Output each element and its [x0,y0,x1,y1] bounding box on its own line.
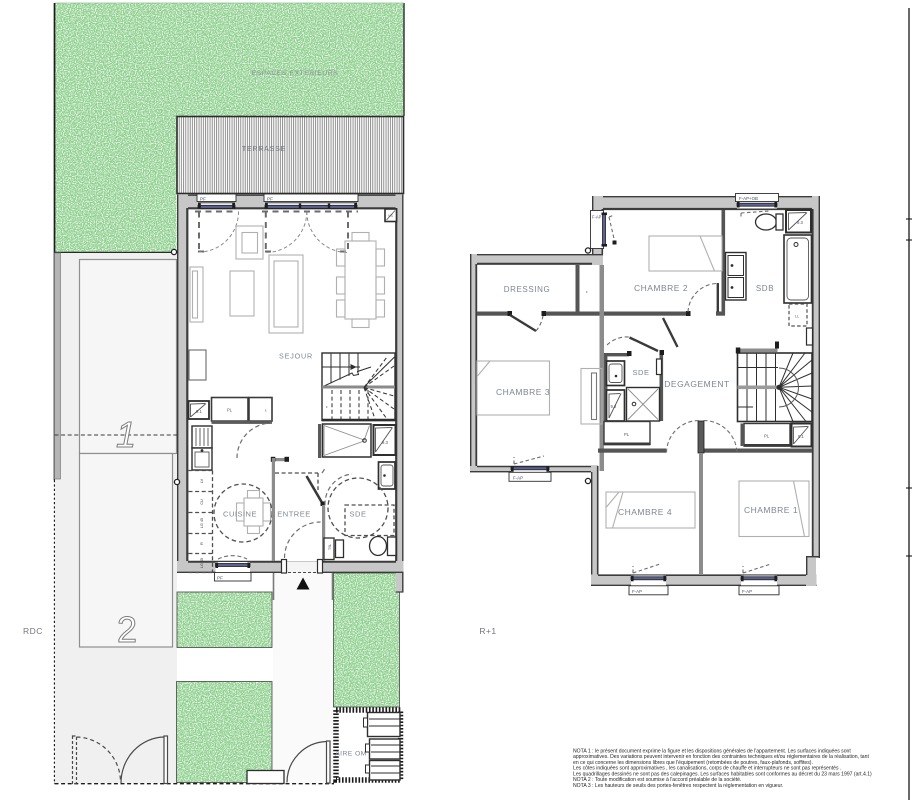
svg-text:SDE: SDE [633,368,650,377]
svg-text:DRESSING: DRESSING [504,285,551,294]
svg-text:CHAMBRE 2: CHAMBRE 2 [634,283,688,293]
svg-text:F-AP: F-AP [592,215,602,220]
svg-text:PF: PF [217,576,223,581]
svg-text:RDC: RDC [23,626,43,636]
svg-text:F-AP: F-AP [742,589,752,594]
svg-text:PF: PF [200,196,206,201]
svg-text:PF: PF [267,196,273,201]
svg-text:CUISINE: CUISINE [223,510,257,519]
svg-text:SDB: SDB [756,284,774,293]
svg-text:DEGAGEMENT: DEGAGEMENT [664,379,729,389]
svg-text:PL: PL [227,408,233,413]
svg-text:ESPACES EXTERIEURS: ESPACES EXTERIEURS [252,70,339,77]
svg-text:F-AP: F-AP [513,476,523,481]
svg-text:9.1: 9.1 [196,409,202,414]
svg-text:9.3: 9.3 [382,440,388,445]
svg-text:LL: LL [795,315,799,319]
svg-text:TSL: TSL [328,544,332,550]
svg-text:CU: CU [200,499,204,505]
svg-text:CHAMBRE 3: CHAMBRE 3 [496,387,550,397]
svg-text:9.2: 9.2 [611,404,617,409]
svg-text:PL: PL [624,432,630,437]
svg-text:TERRASSE: TERRASSE [242,146,286,153]
svg-text:F-AP: F-AP [632,589,642,594]
svg-text:PL: PL [764,434,770,439]
svg-text:CHAMBRE 4: CHAMBRE 4 [618,507,672,517]
svg-text:VS: VS [388,214,393,218]
svg-text:LG 45: LG 45 [200,518,204,528]
svg-text:R: R [200,542,204,545]
svg-text:9.1: 9.1 [798,434,804,439]
svg-text:1: 1 [116,414,136,455]
svg-text:R+1: R+1 [479,626,496,636]
svg-text:LG 45: LG 45 [200,558,204,568]
svg-text:AIRE OM: AIRE OM [335,751,367,758]
svg-text:CHAMBRE 1: CHAMBRE 1 [744,505,798,515]
svg-text:SEJOUR: SEJOUR [279,352,313,361]
svg-text:LV: LV [200,478,204,483]
svg-text:NOTA 3 : Les hauteurs de seuil: NOTA 3 : Les hauteurs de seuils des port… [573,783,783,789]
svg-text:ENTREE: ENTREE [277,510,310,519]
svg-text:F-AP+OB: F-AP+OB [739,196,758,201]
svg-text:2: 2 [117,609,137,650]
svg-text:SDE: SDE [350,510,367,519]
svg-text:9.3: 9.3 [797,220,803,225]
